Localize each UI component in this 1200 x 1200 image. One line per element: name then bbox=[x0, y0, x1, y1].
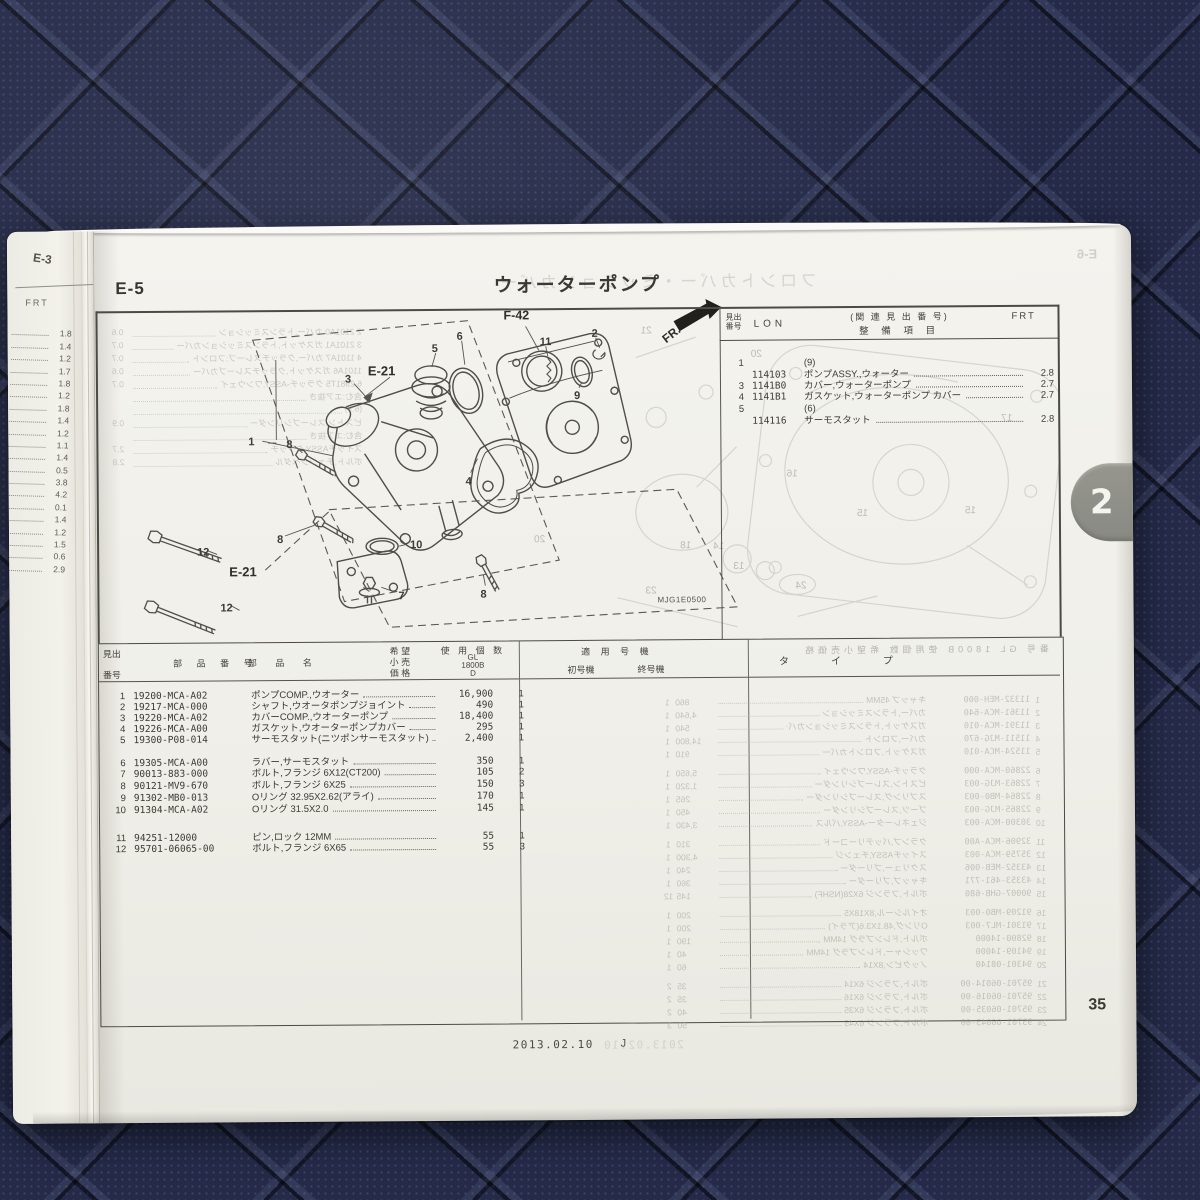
showthrough-callout-number: 20 bbox=[534, 534, 545, 545]
dot-leader bbox=[378, 788, 436, 799]
page-edge-shadow bbox=[1113, 224, 1137, 1116]
dot-leader bbox=[8, 458, 45, 460]
dot-leader bbox=[350, 776, 436, 788]
part-quantity: 1 bbox=[494, 790, 550, 801]
part-ref-number: 9 bbox=[100, 793, 126, 804]
showthrough-page-label: E-6 bbox=[1047, 246, 1097, 261]
related-item-name: ガスケット,ウォーターポンプ カバー bbox=[804, 387, 961, 402]
related-items-table: 見出番号 LON (関 連 見 出 番 号) 整 備 項 目 FRT 1 (9)… bbox=[719, 305, 1061, 639]
part-quantity: 1 bbox=[494, 802, 550, 813]
previous-section-label: E-3 bbox=[32, 251, 52, 267]
dot-leader bbox=[335, 828, 436, 840]
showthrough-row: 20 94301-08140 ノックピン,8X14 60 1 bbox=[661, 957, 1053, 973]
dot-leader bbox=[10, 396, 47, 398]
frt-value: 1.4 bbox=[46, 514, 66, 525]
frt-value: 1.8 bbox=[50, 378, 70, 389]
part-price: 55 bbox=[442, 842, 494, 853]
showthrough-row: 24 95701-06045-00 ボルト,フランジ 6X45 50 3 bbox=[661, 1015, 1053, 1031]
section-index-tab: 2 bbox=[1071, 463, 1134, 541]
page-number: 35 bbox=[1088, 996, 1106, 1014]
frt-value: 1.2 bbox=[46, 527, 66, 538]
catalog-book-page: E-3 FRT 1.81.41.21.71.81.21.81.41.21.11.… bbox=[7, 224, 1137, 1124]
dot-leader bbox=[876, 421, 1023, 423]
frt-value: 3.8 bbox=[47, 477, 67, 488]
header-kakaku: 価 格 bbox=[383, 666, 417, 679]
frt-value: 1.2 bbox=[51, 353, 71, 364]
frt-value: 0.6 bbox=[45, 551, 65, 562]
dot-leader bbox=[7, 495, 44, 497]
showthrough-callout-number: 23 bbox=[645, 585, 656, 596]
frt-value: 1.4 bbox=[49, 415, 69, 426]
dot-leader bbox=[10, 409, 47, 411]
frt-value: 2.9 bbox=[45, 564, 65, 575]
showthrough-row: 10 30300-MCA-003 ジェネレーター-ASSY,パルス 3,430 … bbox=[660, 815, 1052, 831]
part-quantity: 3 bbox=[494, 841, 550, 852]
dot-leader bbox=[821, 410, 1023, 411]
frt-value: 1.2 bbox=[50, 390, 70, 401]
revision-date: 2013.02.10 bbox=[513, 1038, 594, 1052]
dot-leader bbox=[966, 397, 1023, 398]
previous-frt-header: FRT bbox=[25, 298, 48, 308]
footer-code: J bbox=[621, 1038, 627, 1050]
related-frt-value: 2.8 bbox=[1028, 414, 1060, 425]
part-ref-number: 7 bbox=[100, 769, 126, 780]
dot-leader bbox=[433, 730, 436, 741]
showthrough-parts-rows: 1 11332-MEH-000 キャップ 45MM 860 1 2 11361-… bbox=[659, 662, 1053, 1015]
frt-value: 1.5 bbox=[46, 539, 66, 550]
dot-leader bbox=[914, 375, 1023, 377]
frt-value: 1.4 bbox=[51, 341, 71, 352]
dot-leader bbox=[9, 433, 46, 435]
header-d: D bbox=[455, 669, 491, 678]
dot-leader bbox=[11, 371, 48, 373]
dot-leader bbox=[410, 697, 436, 708]
part-price: 150 bbox=[442, 779, 494, 790]
related-row-number: 4 bbox=[720, 392, 744, 403]
related-row-number: 5 bbox=[720, 404, 744, 415]
header-hidashi: 見出 bbox=[103, 647, 121, 660]
dot-leader bbox=[384, 764, 435, 775]
part-name: サーモスタット(ニツポンサーモスタット) bbox=[251, 730, 428, 745]
dot-leader bbox=[820, 364, 1022, 365]
showthrough-callout-number: 21 bbox=[641, 325, 652, 336]
page-edge-line bbox=[73, 231, 80, 1123]
dot-leader bbox=[7, 520, 44, 522]
showthrough-row: 5 11524-MCA-010 ガスケット,フロントカバー 910 1 bbox=[660, 744, 1052, 760]
related-frt-value: 2.7 bbox=[1028, 390, 1060, 401]
showthrough-callout-number: 18 bbox=[680, 540, 691, 551]
part-quantity: 3 bbox=[494, 778, 550, 789]
dot-leader bbox=[353, 753, 436, 765]
dot-leader bbox=[11, 359, 48, 361]
dot-leader bbox=[12, 334, 49, 336]
part-number: 91302-MB0-013 bbox=[134, 792, 252, 804]
frt-value: 0.1 bbox=[47, 502, 67, 513]
related-lon-code: 1141B1 bbox=[752, 391, 800, 402]
related-header-item: 整 備 項 目 bbox=[790, 322, 1010, 338]
part-number: 91304-MCA-A02 bbox=[134, 804, 252, 816]
related-row: 114116 サーモスタット 2.8 bbox=[720, 413, 1060, 427]
previous-pages-edge: E-3 FRT 1.81.41.21.71.81.21.81.41.21.11.… bbox=[7, 231, 100, 1124]
showthrough-date: 2013.02.10 bbox=[603, 1038, 684, 1052]
dot-leader bbox=[7, 508, 44, 510]
part-quantity: 1 bbox=[493, 732, 549, 743]
header-part-name: 部 品 名 bbox=[229, 656, 339, 670]
dot-leader bbox=[8, 471, 45, 473]
dot-leader bbox=[332, 800, 436, 812]
dot-leader bbox=[7, 532, 43, 534]
dot-leader bbox=[11, 347, 48, 349]
related-header-lon: LON bbox=[754, 318, 787, 329]
part-name: Oリング 31.5X2.0 bbox=[252, 801, 329, 816]
part-number: 90013-883-000 bbox=[134, 768, 252, 780]
part-number: 19300-P08-014 bbox=[133, 734, 251, 746]
part-number: 90121-MV9-670 bbox=[134, 780, 252, 792]
dot-leader bbox=[350, 839, 436, 851]
dot-leader bbox=[9, 421, 46, 423]
related-item-name: サーモスタット bbox=[804, 412, 871, 426]
previous-page-values: 1.81.41.21.71.81.21.81.41.21.11.40.53.84… bbox=[7, 325, 72, 574]
frt-value: 1.1 bbox=[48, 440, 68, 451]
dot-leader bbox=[10, 384, 47, 386]
related-header-frt: FRT bbox=[1011, 311, 1035, 322]
frt-value: 1.2 bbox=[49, 428, 69, 439]
part-price: 170 bbox=[442, 791, 494, 802]
section-label: E-5 bbox=[115, 279, 145, 299]
part-ref-number: 10 bbox=[100, 805, 126, 816]
showthrough-parts-header: 番号 GL 1800B 使用個数 希望小売価格 bbox=[699, 642, 1049, 657]
part-ref-number: 8 bbox=[100, 781, 126, 792]
related-row-number: 1 bbox=[720, 358, 744, 369]
previous-value-row: 2.9 bbox=[7, 560, 65, 574]
parts-list-table: 見出 番号 部 品 番 号 部 品 名 希 望 小 売 価 格 使 用 個 数 … bbox=[98, 637, 1067, 1028]
dot-leader bbox=[7, 483, 44, 485]
frt-value: 1.8 bbox=[52, 328, 72, 339]
related-header-hidashi: 見出番号 bbox=[725, 313, 741, 331]
frt-value: 1.4 bbox=[48, 452, 68, 463]
dot-leader bbox=[7, 545, 43, 547]
dot-leader bbox=[363, 686, 435, 698]
part-number: 95701-06065-00 bbox=[134, 843, 252, 855]
frt-value: 1.7 bbox=[50, 366, 70, 377]
frt-value: 0.5 bbox=[48, 465, 68, 476]
dot-leader bbox=[392, 708, 435, 719]
part-ref-number: 12 bbox=[100, 844, 126, 855]
part-price: 2,400 bbox=[441, 733, 493, 744]
frt-value: 1.8 bbox=[49, 403, 69, 414]
diagram-section: 2 2101A0 カバー,トランスミッション0.63 2101A1 ガスケット,… bbox=[95, 295, 1061, 644]
page-title: ウォーターポンプ bbox=[427, 269, 727, 298]
dot-leader bbox=[410, 719, 436, 730]
dot-leader bbox=[7, 570, 42, 572]
part-quantity: 2 bbox=[494, 766, 550, 777]
part-name: ボルト,フランジ 6X65 bbox=[252, 840, 346, 855]
showthrough-row: 15 90007-GHB-680 ボルト,フランジ 6X28(NSHF) 145… bbox=[660, 886, 1052, 902]
section-tab-number: 2 bbox=[1090, 482, 1114, 522]
related-lon-code: 114116 bbox=[752, 415, 800, 426]
photo-of-parts-catalog: { "page": { "section": "E-5", "title": "… bbox=[0, 0, 1200, 1200]
dot-leader bbox=[8, 446, 45, 448]
dot-leader bbox=[7, 557, 42, 559]
part-price: 145 bbox=[442, 803, 494, 814]
header-shogoki: 初号機 bbox=[551, 663, 611, 676]
frt-value: 4.2 bbox=[47, 489, 67, 500]
header-tekiyo: 適 用 号 機 bbox=[537, 644, 697, 658]
header-bango: 番号 bbox=[103, 668, 121, 681]
part-price: 105 bbox=[442, 767, 494, 778]
part-ref-number: 5 bbox=[99, 735, 125, 746]
related-header-rule bbox=[720, 338, 1060, 342]
